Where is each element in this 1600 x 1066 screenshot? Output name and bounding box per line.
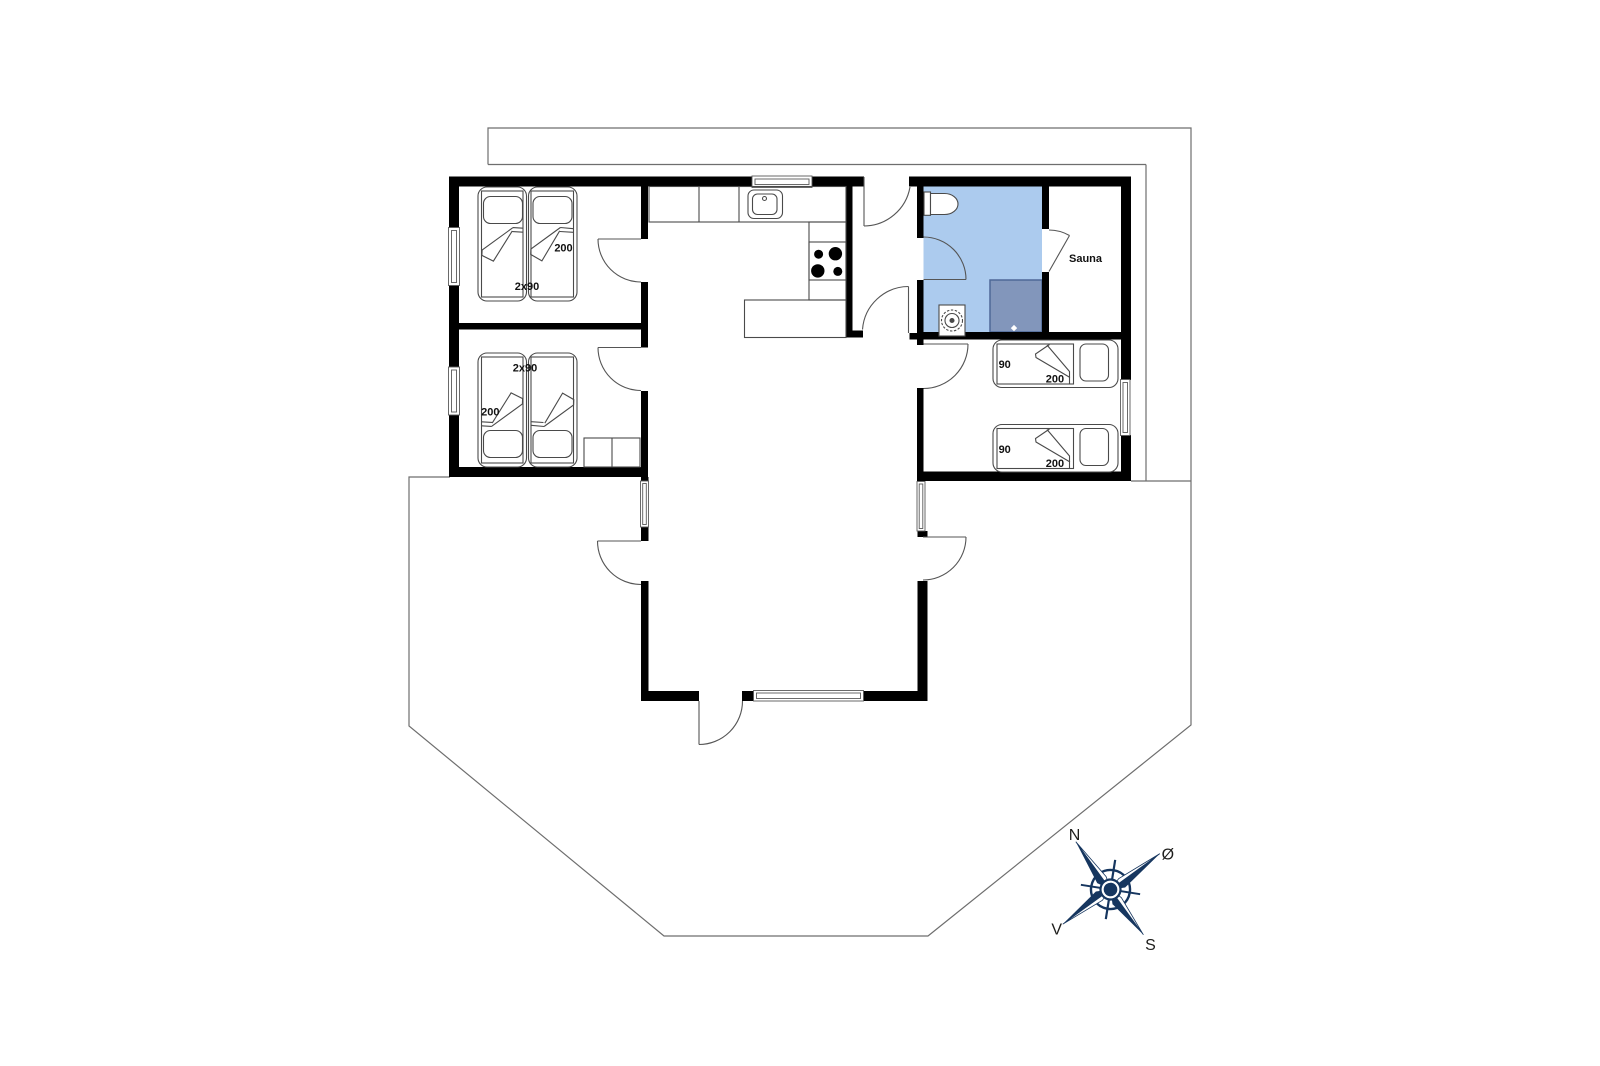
svg-text:200: 200 bbox=[554, 242, 572, 254]
svg-text:Sauna: Sauna bbox=[1069, 253, 1103, 265]
svg-text:200: 200 bbox=[481, 407, 499, 419]
svg-text:90: 90 bbox=[999, 359, 1011, 371]
svg-text:N: N bbox=[1069, 827, 1081, 844]
svg-text:200: 200 bbox=[1046, 458, 1064, 470]
svg-text:V: V bbox=[1051, 922, 1062, 939]
svg-text:90: 90 bbox=[999, 444, 1011, 456]
svg-text:2x90: 2x90 bbox=[513, 362, 537, 374]
svg-text:200: 200 bbox=[1046, 373, 1064, 385]
svg-text:S: S bbox=[1145, 937, 1156, 954]
svg-text:2x90: 2x90 bbox=[515, 281, 539, 293]
svg-text:Ø: Ø bbox=[1162, 847, 1174, 864]
